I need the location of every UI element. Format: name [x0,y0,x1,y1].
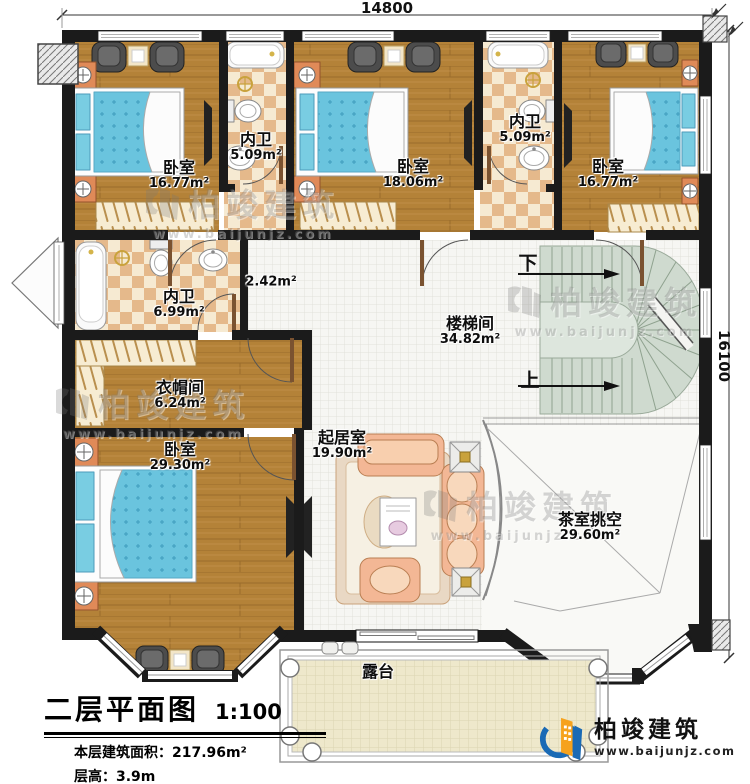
floor-area-value: 217.96m² [172,745,247,761]
stair-up-label: 上 [520,366,539,393]
bathtub [76,242,106,330]
title-underline [44,732,326,735]
title-underline [44,737,326,738]
room-label-bedroom-top-left: 卧室 16.77m² [149,159,209,191]
tv [204,100,212,166]
dimension-right: 16100 [715,330,733,382]
bathtub [488,42,548,68]
chair-set-bay [136,646,224,674]
room-label-bath-mid-left: 内卫 6.99m² [153,288,204,320]
dimension-top: 14800 [361,0,413,17]
brand-website: www.baijunjz.com [594,744,735,758]
sink [199,249,227,271]
room-label-corridor: 2.42m² [245,276,296,291]
stair-down-label: 下 [518,249,537,276]
wardrobe [300,202,396,230]
tv [304,496,312,558]
tv [286,496,294,558]
floor-area-label: 本层建筑面积： [74,745,172,761]
wardrobe [96,202,214,230]
bathtub [226,42,284,68]
plan-title: 二层平面图 [44,688,199,728]
room-label-bedroom-bottom-left: 卧室 29.30m² [150,441,210,473]
wardrobe [608,204,699,232]
brand-logo-icon [538,712,586,764]
floor-height-label: 层高： [74,769,116,784]
brand-name: 柏竣建筑 [594,718,735,743]
sink [519,146,549,170]
staircase [518,246,705,414]
room-label-terrace: 露台 [362,663,394,681]
wardrobe [76,340,196,366]
room-label-cloakroom: 衣帽间 6.24m² [154,379,205,411]
floor-plan-canvas: 柏竣建筑 www.baijunjz.com 柏竣建筑 www.baijunjz.… [0,0,750,784]
tv [564,103,572,168]
floor-height-value: 3.9m [116,769,155,784]
bay-window-left [12,238,64,328]
tv [464,100,472,166]
wardrobe [76,366,104,426]
plan-scale: 1:100 [215,700,282,724]
room-label-bath-top-left: 内卫 5.09m² [230,131,281,163]
title-block: 二层平面图 1:100 本层建筑面积：217.96m² 层高：3.9m [44,688,326,784]
coffee-table [380,498,416,546]
room-label-tea-room-void: 茶室挑空 29.60m² [558,511,622,543]
room-label-bedroom-top-right: 卧室 16.77m² [578,158,638,190]
room-label-bedroom-top-mid: 卧室 18.06m² [383,158,443,190]
brand-logo: 柏竣建筑 www.baijunjz.com [538,712,735,764]
room-label-bath-top-right: 内卫 5.09m² [499,113,550,145]
toilet [224,100,261,122]
sliding-door [356,630,478,642]
room-label-living-room: 起居室 19.90m² [312,429,372,461]
room-label-stair-hall: 楼梯间 34.82m² [440,315,500,347]
